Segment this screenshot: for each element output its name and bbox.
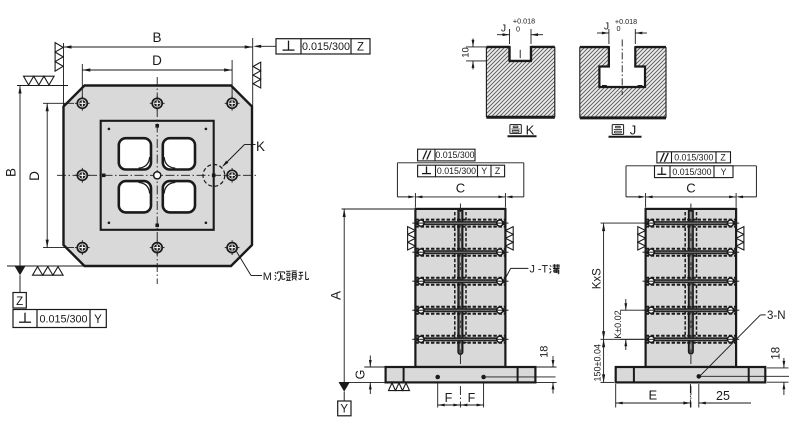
svg-text:J -T: J -T — [530, 264, 549, 276]
svg-text:G: G — [353, 370, 367, 380]
svg-text:K±0.02: K±0.02 — [613, 310, 623, 338]
svg-text:Y: Y — [481, 166, 487, 176]
svg-text:10: 10 — [461, 47, 472, 58]
svg-text:J: J — [630, 123, 637, 138]
svg-text:M: M — [263, 271, 272, 283]
svg-text:J: J — [501, 23, 506, 35]
svg-text:18: 18 — [538, 346, 550, 358]
svg-text:0: 0 — [516, 25, 520, 34]
svg-text:D: D — [27, 171, 42, 181]
svg-text:Y: Y — [721, 167, 727, 177]
svg-text:F: F — [445, 391, 453, 405]
svg-text:K: K — [256, 139, 265, 154]
svg-text:J: J — [604, 21, 609, 33]
svg-text:Z: Z — [16, 296, 23, 308]
svg-text:3-N: 3-N — [767, 310, 786, 322]
svg-text:0.015/300: 0.015/300 — [39, 313, 87, 325]
svg-text:25: 25 — [716, 389, 730, 403]
svg-text:C: C — [686, 181, 695, 196]
svg-text:18: 18 — [771, 347, 783, 360]
svg-text:Y: Y — [94, 314, 102, 326]
svg-text:B: B — [4, 168, 19, 177]
svg-text:Z: Z — [357, 42, 364, 54]
svg-text:Y: Y — [340, 404, 348, 416]
svg-text:0.015/300: 0.015/300 — [437, 166, 476, 176]
svg-text:0.015/300: 0.015/300 — [672, 167, 711, 177]
svg-text:E: E — [648, 388, 657, 403]
svg-text:0.015/300: 0.015/300 — [302, 41, 350, 53]
svg-text:150±0.04: 150±0.04 — [592, 344, 602, 381]
svg-text:B: B — [152, 30, 161, 45]
svg-text:0.015/300: 0.015/300 — [435, 150, 474, 160]
svg-text:A: A — [328, 291, 343, 300]
svg-text:Z: Z — [720, 153, 726, 163]
svg-text:KxS: KxS — [591, 268, 603, 289]
svg-text:0.015/300: 0.015/300 — [674, 153, 713, 163]
svg-text:Z: Z — [495, 166, 501, 176]
svg-text:D: D — [152, 53, 162, 68]
svg-text:0: 0 — [617, 24, 621, 33]
svg-text:F: F — [468, 391, 476, 405]
svg-text:C: C — [456, 181, 465, 196]
